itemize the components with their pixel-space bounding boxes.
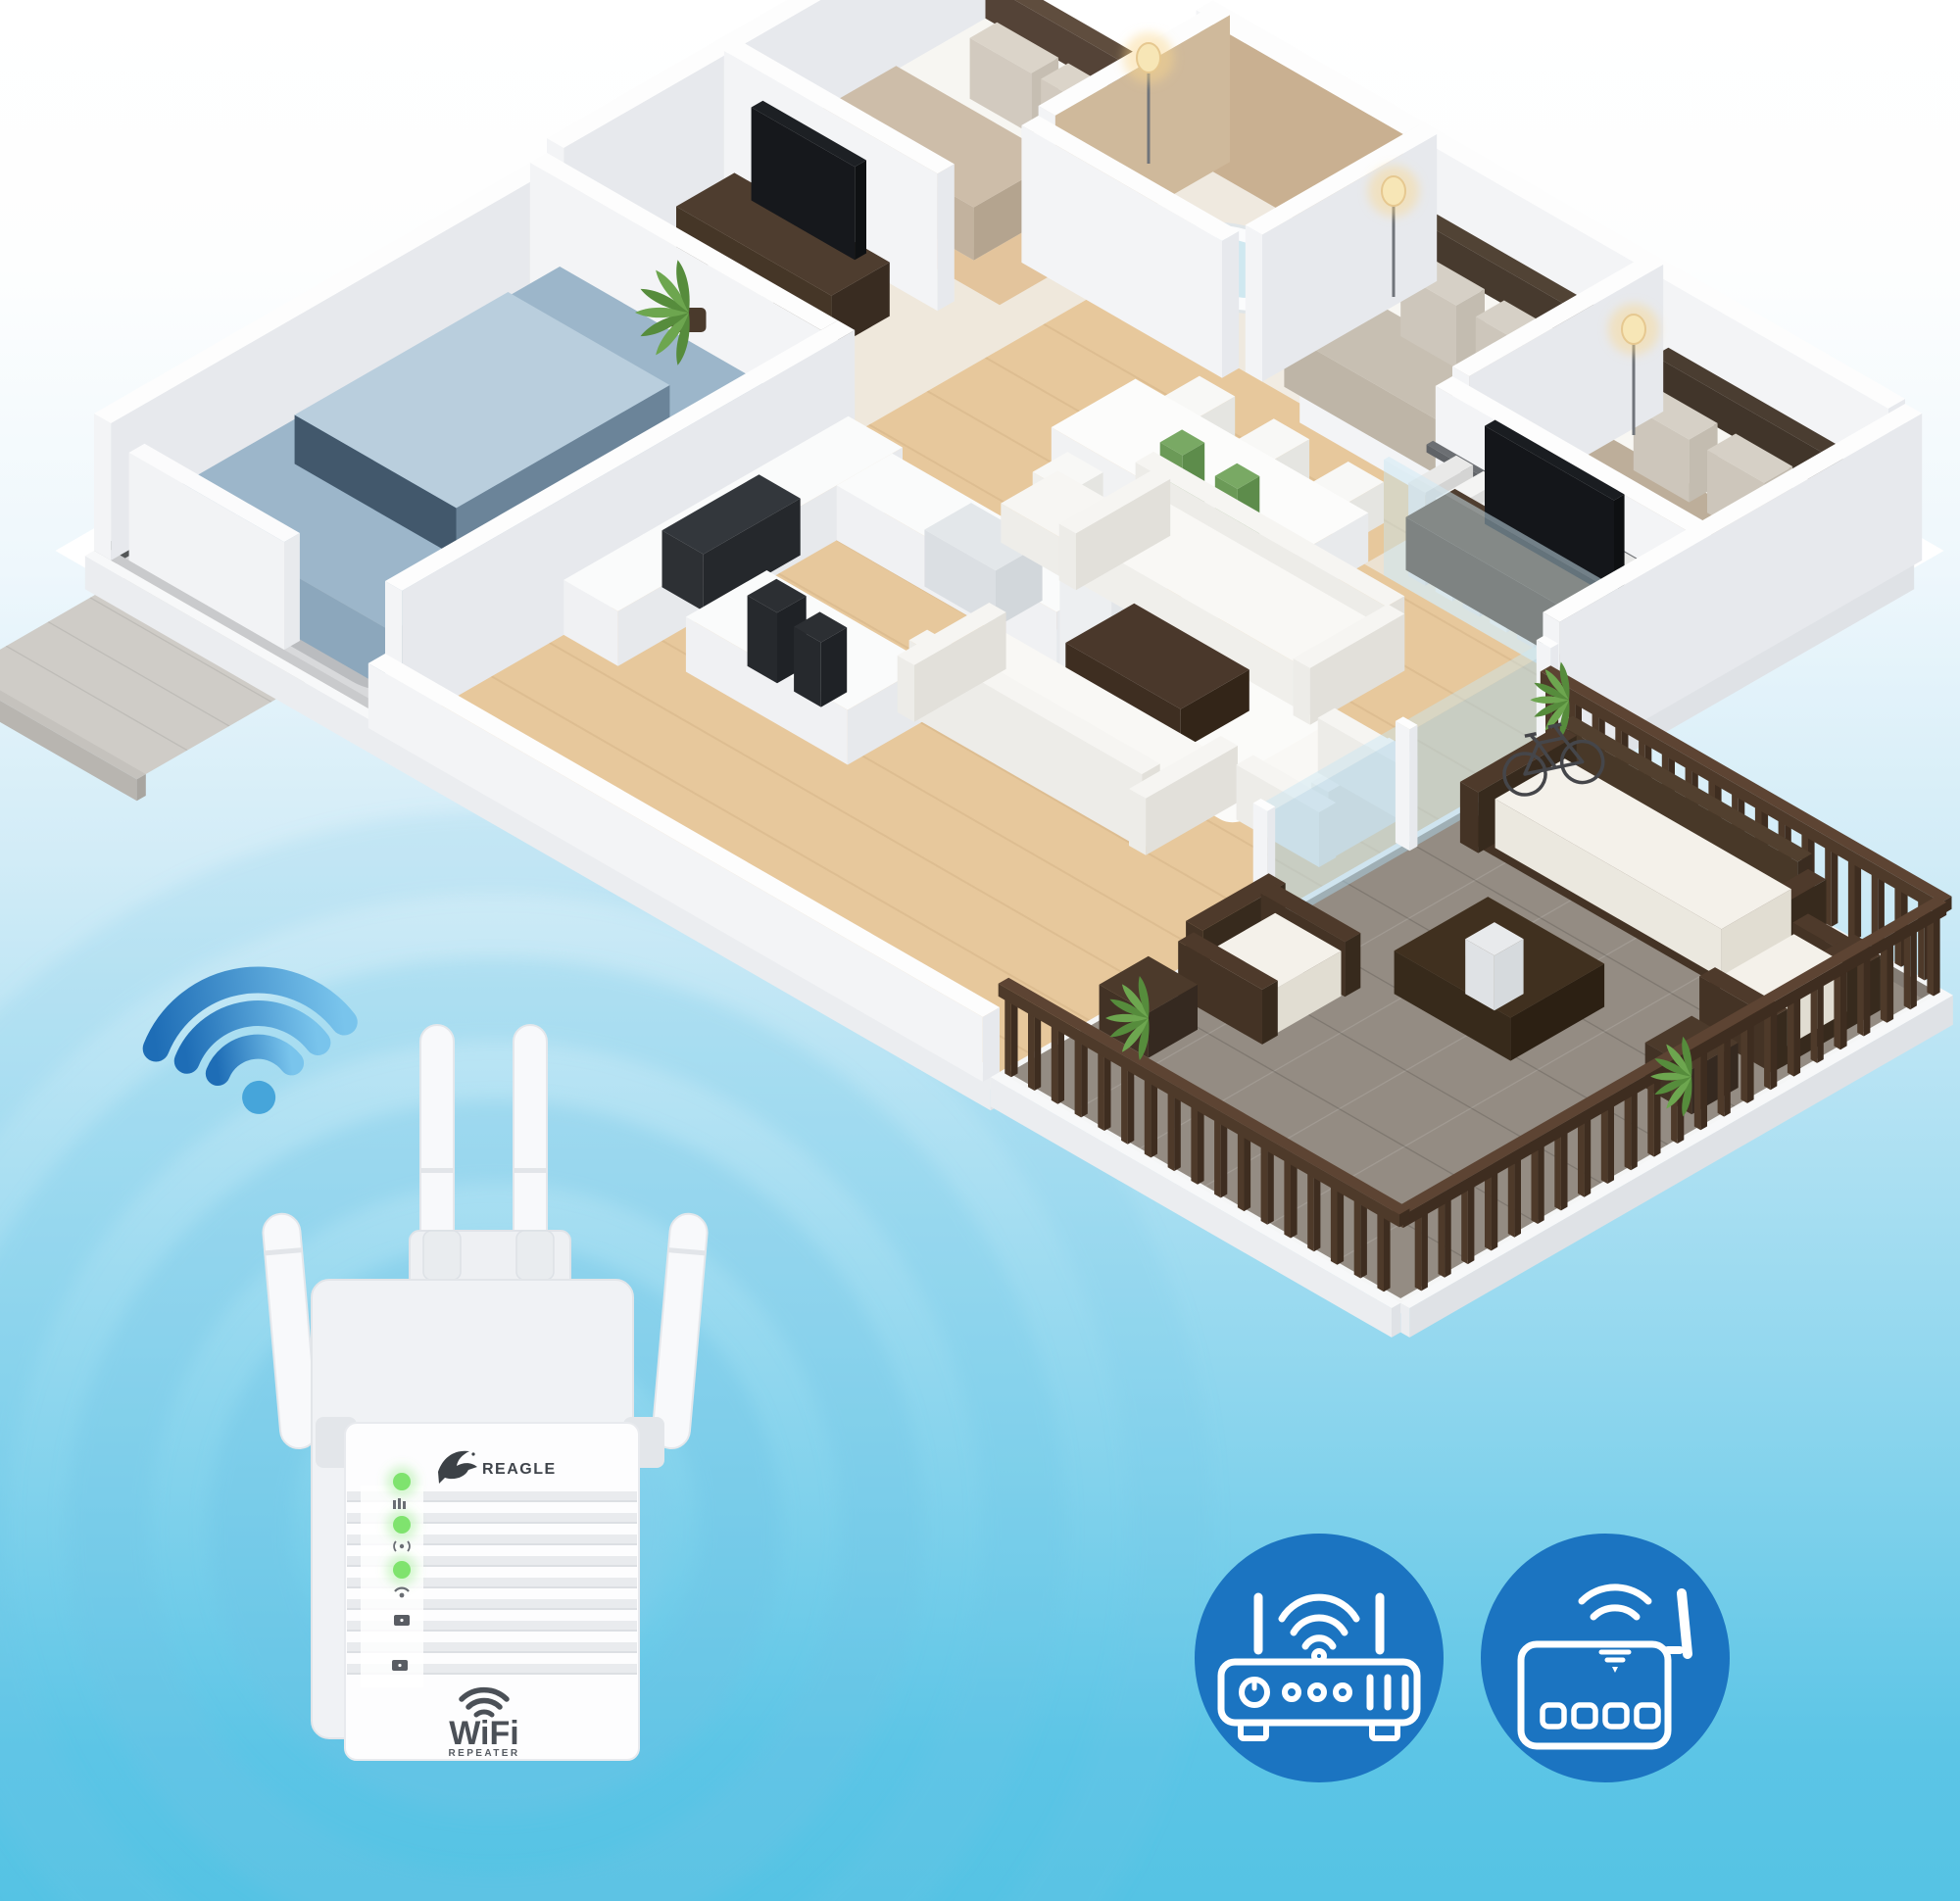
button-dot xyxy=(398,1664,401,1667)
wps-led xyxy=(393,1516,411,1534)
brand-logo-text: REAGLE xyxy=(482,1461,557,1478)
railing-post xyxy=(1354,1198,1361,1279)
wifi-logo-text: WiFi xyxy=(449,1715,518,1752)
railing-post xyxy=(1832,847,1838,927)
railing-post xyxy=(1631,1091,1638,1171)
railing-post xyxy=(1035,1010,1042,1091)
railing-post xyxy=(1261,1145,1268,1225)
glass-frame xyxy=(1409,725,1417,852)
railing-post xyxy=(1214,1118,1221,1198)
railing-post xyxy=(1764,1009,1771,1090)
railing-post xyxy=(1538,1144,1544,1224)
signal-led xyxy=(393,1561,411,1579)
power-led xyxy=(393,1473,411,1490)
railing-post xyxy=(1421,1211,1428,1292)
railing-post xyxy=(1788,997,1794,1077)
railing-post xyxy=(1439,1197,1445,1278)
railing-post xyxy=(1468,1184,1475,1264)
railing-post xyxy=(1191,1104,1198,1185)
railing-post xyxy=(1514,1157,1521,1238)
glass-frame xyxy=(1396,721,1410,851)
railing-post xyxy=(1075,1038,1082,1118)
railing-post xyxy=(1384,1211,1391,1292)
railing-post xyxy=(1817,983,1824,1063)
railing-post xyxy=(1461,1184,1468,1264)
railing-post xyxy=(1445,1197,1451,1278)
railing-post xyxy=(1004,998,1011,1078)
railing-post xyxy=(1028,1010,1035,1091)
railing-post xyxy=(1694,1050,1701,1131)
railing-post xyxy=(1881,943,1887,1023)
bird-eye xyxy=(471,1452,474,1455)
railing-post xyxy=(1647,1077,1654,1157)
railing-post xyxy=(1724,1037,1731,1117)
railing-post xyxy=(1198,1104,1204,1185)
railing-post xyxy=(1654,1077,1661,1157)
railing-post xyxy=(1864,956,1871,1037)
railing-post xyxy=(1740,1023,1747,1103)
railing-post xyxy=(1338,1185,1345,1265)
terrace-skirt xyxy=(1400,1303,1409,1338)
railing-post xyxy=(1747,1023,1754,1103)
railing-post xyxy=(1585,1117,1592,1197)
railing-post xyxy=(1934,916,1940,997)
railing-post xyxy=(1508,1157,1515,1238)
antenna-collar xyxy=(516,1231,554,1280)
railing-post xyxy=(1857,956,1864,1037)
antenna-center-left-icon xyxy=(420,1025,454,1246)
wall xyxy=(1222,231,1239,378)
terrace-chair-arm xyxy=(1345,933,1360,997)
railing-post xyxy=(1855,860,1862,941)
railing-post xyxy=(1607,1103,1614,1184)
railing-post xyxy=(1245,1131,1251,1211)
railing-post xyxy=(1098,1050,1104,1131)
railing-post xyxy=(1057,1024,1064,1104)
railing-post xyxy=(1700,1050,1707,1131)
railing-post xyxy=(1121,1064,1128,1145)
railing-post xyxy=(1104,1050,1111,1131)
railing-post xyxy=(1554,1131,1561,1211)
railing-post xyxy=(1910,929,1917,1009)
railing-post xyxy=(1291,1158,1298,1239)
terrace-skirt xyxy=(1392,1303,1400,1338)
railing-post xyxy=(1151,1078,1157,1158)
railing-post xyxy=(1771,1009,1778,1090)
railing-post xyxy=(1081,1038,1088,1118)
railing-post xyxy=(1145,1078,1151,1158)
railing-post xyxy=(1052,1024,1058,1104)
sofa-arm xyxy=(898,656,914,722)
railing-post xyxy=(1168,1091,1175,1171)
railing-post xyxy=(1601,1103,1608,1184)
repeater-logo-text: REPEATER xyxy=(449,1748,520,1759)
sofa-arm xyxy=(1294,658,1310,725)
wall xyxy=(94,414,111,561)
railing-post xyxy=(1840,969,1847,1049)
lamp-shade xyxy=(1382,176,1405,206)
modem-router-badge xyxy=(1481,1534,1730,1782)
railing-post xyxy=(1904,929,1911,1009)
router-wifi-badge xyxy=(1195,1534,1444,1782)
railing-post xyxy=(1718,1037,1725,1117)
railing-post xyxy=(1927,916,1934,997)
sofa-arm xyxy=(1129,789,1146,855)
railing-post xyxy=(1284,1158,1291,1239)
railing-post xyxy=(1811,983,1818,1063)
railing-post xyxy=(1848,860,1855,941)
terrace-chair-arm xyxy=(1262,981,1278,1045)
railing-post xyxy=(1415,1211,1422,1292)
railing-post xyxy=(1578,1117,1585,1197)
antenna-collar xyxy=(423,1231,461,1280)
antenna-center-right-icon xyxy=(514,1025,547,1246)
button-dot xyxy=(400,1619,403,1622)
desk-tv xyxy=(855,161,866,261)
lamp-shade xyxy=(1137,43,1160,73)
railing-post xyxy=(1238,1131,1245,1211)
wall xyxy=(1246,225,1262,382)
scene-canvas: REAGLE xyxy=(0,0,1960,1901)
railing-post xyxy=(1331,1185,1338,1265)
railing-post xyxy=(1307,1171,1314,1251)
house-structures xyxy=(0,0,1953,1338)
railing-post xyxy=(1887,943,1894,1023)
railing-post xyxy=(1834,969,1840,1049)
railing-post xyxy=(1561,1131,1568,1211)
lamp-shade xyxy=(1622,315,1645,344)
railing-post xyxy=(1532,1144,1539,1224)
railing-post xyxy=(1174,1091,1181,1171)
antenna-ring xyxy=(514,1168,547,1173)
railing-post xyxy=(1267,1145,1274,1225)
railing-post xyxy=(1360,1198,1367,1279)
sofa-arm xyxy=(1059,523,1076,590)
wall-front-low xyxy=(983,1007,1000,1082)
railing-post xyxy=(1011,998,1018,1078)
railing-post xyxy=(1314,1171,1321,1251)
product-hero-image: REAGLE xyxy=(0,0,1960,1901)
garage-door xyxy=(284,533,300,650)
terrace-sofa-arm xyxy=(1460,782,1479,853)
railing-post xyxy=(1128,1064,1135,1145)
antenna-ring xyxy=(420,1168,454,1173)
railing-post xyxy=(1485,1171,1492,1251)
railing-post xyxy=(1794,997,1801,1077)
wall xyxy=(938,164,955,311)
railing-post xyxy=(1625,1091,1632,1171)
railing-post xyxy=(1221,1118,1228,1198)
railing-post xyxy=(1377,1211,1384,1292)
railing-post xyxy=(1492,1171,1498,1251)
